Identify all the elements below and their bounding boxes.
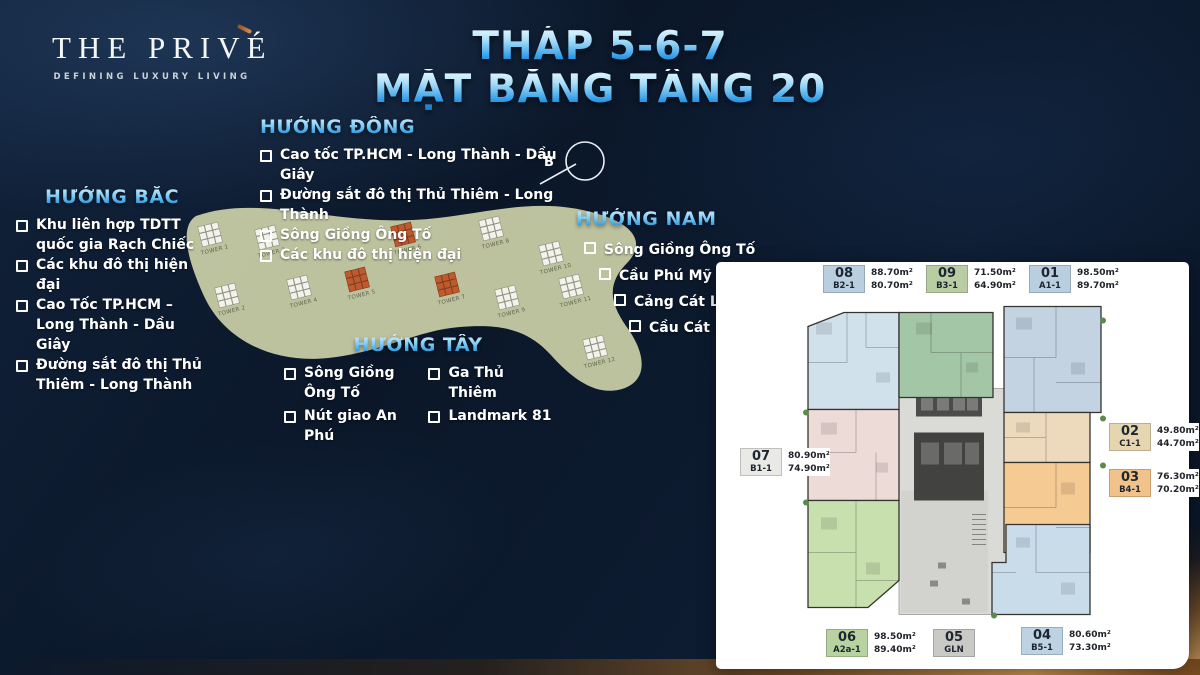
checkbox-bullet-icon: [260, 190, 272, 202]
list-item-label: Sông Giồng Ông Tố: [304, 363, 418, 403]
checkbox-bullet-icon: [16, 300, 28, 312]
unit-key: 07 B1-1: [740, 448, 782, 476]
plant-icon: [1100, 318, 1106, 324]
list-item: Khu liên hợp TDTT quốc gia Rạch Chiếc: [16, 215, 208, 255]
checkbox-bullet-icon: [260, 150, 272, 162]
unit-label-06: 06 A2a-1 98.50m²89.40m²: [826, 629, 916, 657]
plant-icon: [1100, 416, 1106, 422]
list-item: Các khu đô thị hiện đại: [260, 245, 590, 265]
unit-label-09: 09 B3-1 71.50m²64.90m²: [926, 265, 1016, 293]
unit-05-gln: [901, 491, 988, 613]
list-item: Sông Giồng Ông Tố: [584, 237, 766, 263]
unit-areas: 71.50m²64.90m²: [968, 265, 1016, 293]
list-item-label: Đường sắt đô thị Thủ Thiêm - Long Thành: [36, 355, 208, 395]
direction-west-heading: HƯỚNG TÂY: [284, 334, 552, 356]
brand-name: THE PRIVÉ: [52, 30, 273, 66]
plant-icon: [1100, 463, 1106, 469]
title-line1: THÁP 5-6-7: [320, 26, 880, 69]
list-item-label: Sông Giồng Ông Tố: [280, 225, 431, 245]
checkbox-bullet-icon: [284, 411, 296, 423]
unit-key: 06 A2a-1: [826, 629, 868, 657]
direction-west: HƯỚNG TÂY Sông Giồng Ông Tố Nút giao An …: [284, 334, 552, 446]
unit-areas: 88.70m²80.70m²: [865, 265, 913, 293]
list-item: Sông Giồng Ông Tố: [284, 363, 418, 403]
direction-south-heading: HƯỚNG NAM: [576, 208, 766, 230]
list-item-label: Các khu đô thị hiện đại: [36, 255, 208, 295]
unit-label-02: 02 C1-1 49.80m²44.70m²: [1109, 423, 1199, 451]
unit-09: [899, 313, 993, 398]
unit-label-03: 03 B4-1 76.30m²70.20m²: [1109, 469, 1199, 497]
unit-key: 02 C1-1: [1109, 423, 1151, 451]
list-item-label: Sông Giồng Ông Tố: [604, 237, 755, 263]
unit-areas: 49.80m²44.70m²: [1151, 423, 1199, 451]
checkbox-bullet-icon: [284, 368, 296, 380]
unit-areas: 98.50m²89.70m²: [1071, 265, 1119, 293]
unit-06: [808, 501, 899, 608]
unit-04: [992, 525, 1090, 615]
checkbox-bullet-icon: [428, 368, 440, 380]
list-item: Nút giao An Phú: [284, 406, 418, 446]
unit-key: 08 B2-1: [823, 265, 865, 293]
compass-label: B: [544, 155, 554, 170]
brand-logo: THE PRIVÉ DEFINING LUXURY LIVING: [52, 30, 252, 82]
plant-icon: [803, 410, 809, 416]
checkbox-bullet-icon: [16, 220, 28, 232]
list-item-label: Cao Tốc TP.HCM – Long Thành - Dầu Giây: [36, 295, 208, 355]
direction-north: HƯỚNG BẮC Khu liên hợp TDTT quốc gia Rạc…: [16, 186, 208, 395]
checkbox-bullet-icon: [614, 294, 626, 306]
list-item-label: Khu liên hợp TDTT quốc gia Rạch Chiếc: [36, 215, 208, 255]
unit-areas: 98.50m²89.40m²: [868, 629, 916, 657]
direction-east-heading: HƯỚNG ĐÔNG: [260, 116, 590, 138]
floor-plan-panel: 08 B2-1 88.70m²80.70m² 09 B3-1 71.50m²64…: [716, 262, 1189, 669]
list-item: Ga Thủ Thiêm: [428, 363, 552, 403]
list-item: Đường sắt đô thị Thủ Thiêm - Long Thành: [16, 355, 208, 395]
unit-key: 01 A1-1: [1029, 265, 1071, 293]
checkbox-bullet-icon: [629, 320, 641, 332]
plant-icon: [803, 500, 809, 506]
unit-areas: 80.60m²73.30m²: [1063, 627, 1111, 655]
unit-label-05: 05 GLN: [933, 629, 975, 657]
list-item-label: Cầu Phú Mỹ: [619, 263, 712, 289]
page-title: THÁP 5-6-7 MẶT BẰNG TẦNG 20: [320, 26, 880, 112]
checkbox-bullet-icon: [16, 260, 28, 272]
unit-label-07: 07 B1-1 80.90m²74.90m²: [740, 448, 830, 476]
compass-north-icon: B: [534, 136, 612, 192]
list-item-label: Nút giao An Phú: [304, 406, 418, 446]
unit-key: 04 B5-1: [1021, 627, 1063, 655]
unit-key: 05 GLN: [933, 629, 975, 657]
list-item-label: Landmark 81: [448, 406, 551, 426]
unit-areas: 80.90m²74.90m²: [782, 448, 830, 476]
unit-label-04: 04 B5-1 80.60m²73.30m²: [1021, 627, 1111, 655]
list-item-label: Ga Thủ Thiêm: [448, 363, 552, 403]
direction-north-heading: HƯỚNG BẮC: [16, 186, 208, 208]
list-item: Các khu đô thị hiện đại: [16, 255, 208, 295]
title-line2: MẶT BẰNG TẦNG 20: [320, 69, 880, 112]
plant-icon: [991, 613, 997, 619]
slide: THE PRIVÉ DEFINING LUXURY LIVING THÁP 5-…: [0, 0, 1200, 675]
checkbox-bullet-icon: [584, 242, 596, 254]
list-item: Landmark 81: [428, 406, 552, 426]
unit-label-01: 01 A1-1 98.50m²89.70m²: [1029, 265, 1119, 293]
checkbox-bullet-icon: [428, 411, 440, 423]
checkbox-bullet-icon: [260, 230, 272, 242]
list-item: Cao Tốc TP.HCM – Long Thành - Dầu Giây: [16, 295, 208, 355]
checkbox-bullet-icon: [260, 250, 272, 262]
brand-tagline: DEFINING LUXURY LIVING: [52, 72, 252, 82]
unit-key: 03 B4-1: [1109, 469, 1151, 497]
unit-key: 09 B3-1: [926, 265, 968, 293]
list-item: Sông Giồng Ông Tố: [260, 225, 590, 245]
checkbox-bullet-icon: [599, 268, 611, 280]
unit-areas: 76.30m²70.20m²: [1151, 469, 1199, 497]
unit-label-08: 08 B2-1 88.70m²80.70m²: [823, 265, 913, 293]
checkbox-bullet-icon: [16, 360, 28, 372]
list-item-label: Các khu đô thị hiện đại: [280, 245, 461, 265]
